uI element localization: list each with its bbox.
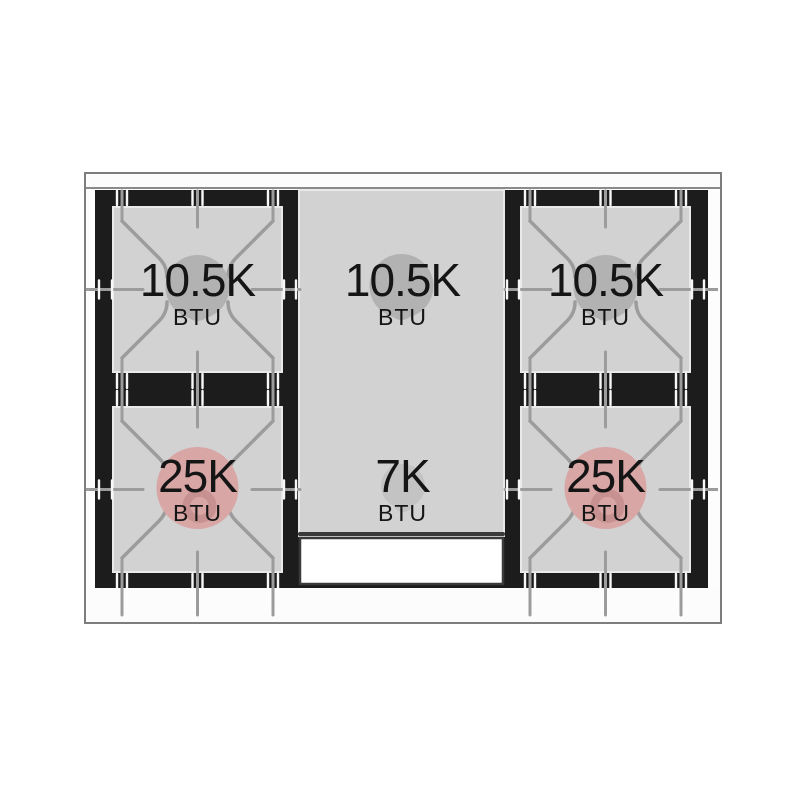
burner-grates-graphic bbox=[86, 174, 718, 620]
cooktop-btu-diagram: 10.5K BTU 10.5K BTU 10.5K BTU 25K BTU 7K… bbox=[0, 0, 800, 800]
